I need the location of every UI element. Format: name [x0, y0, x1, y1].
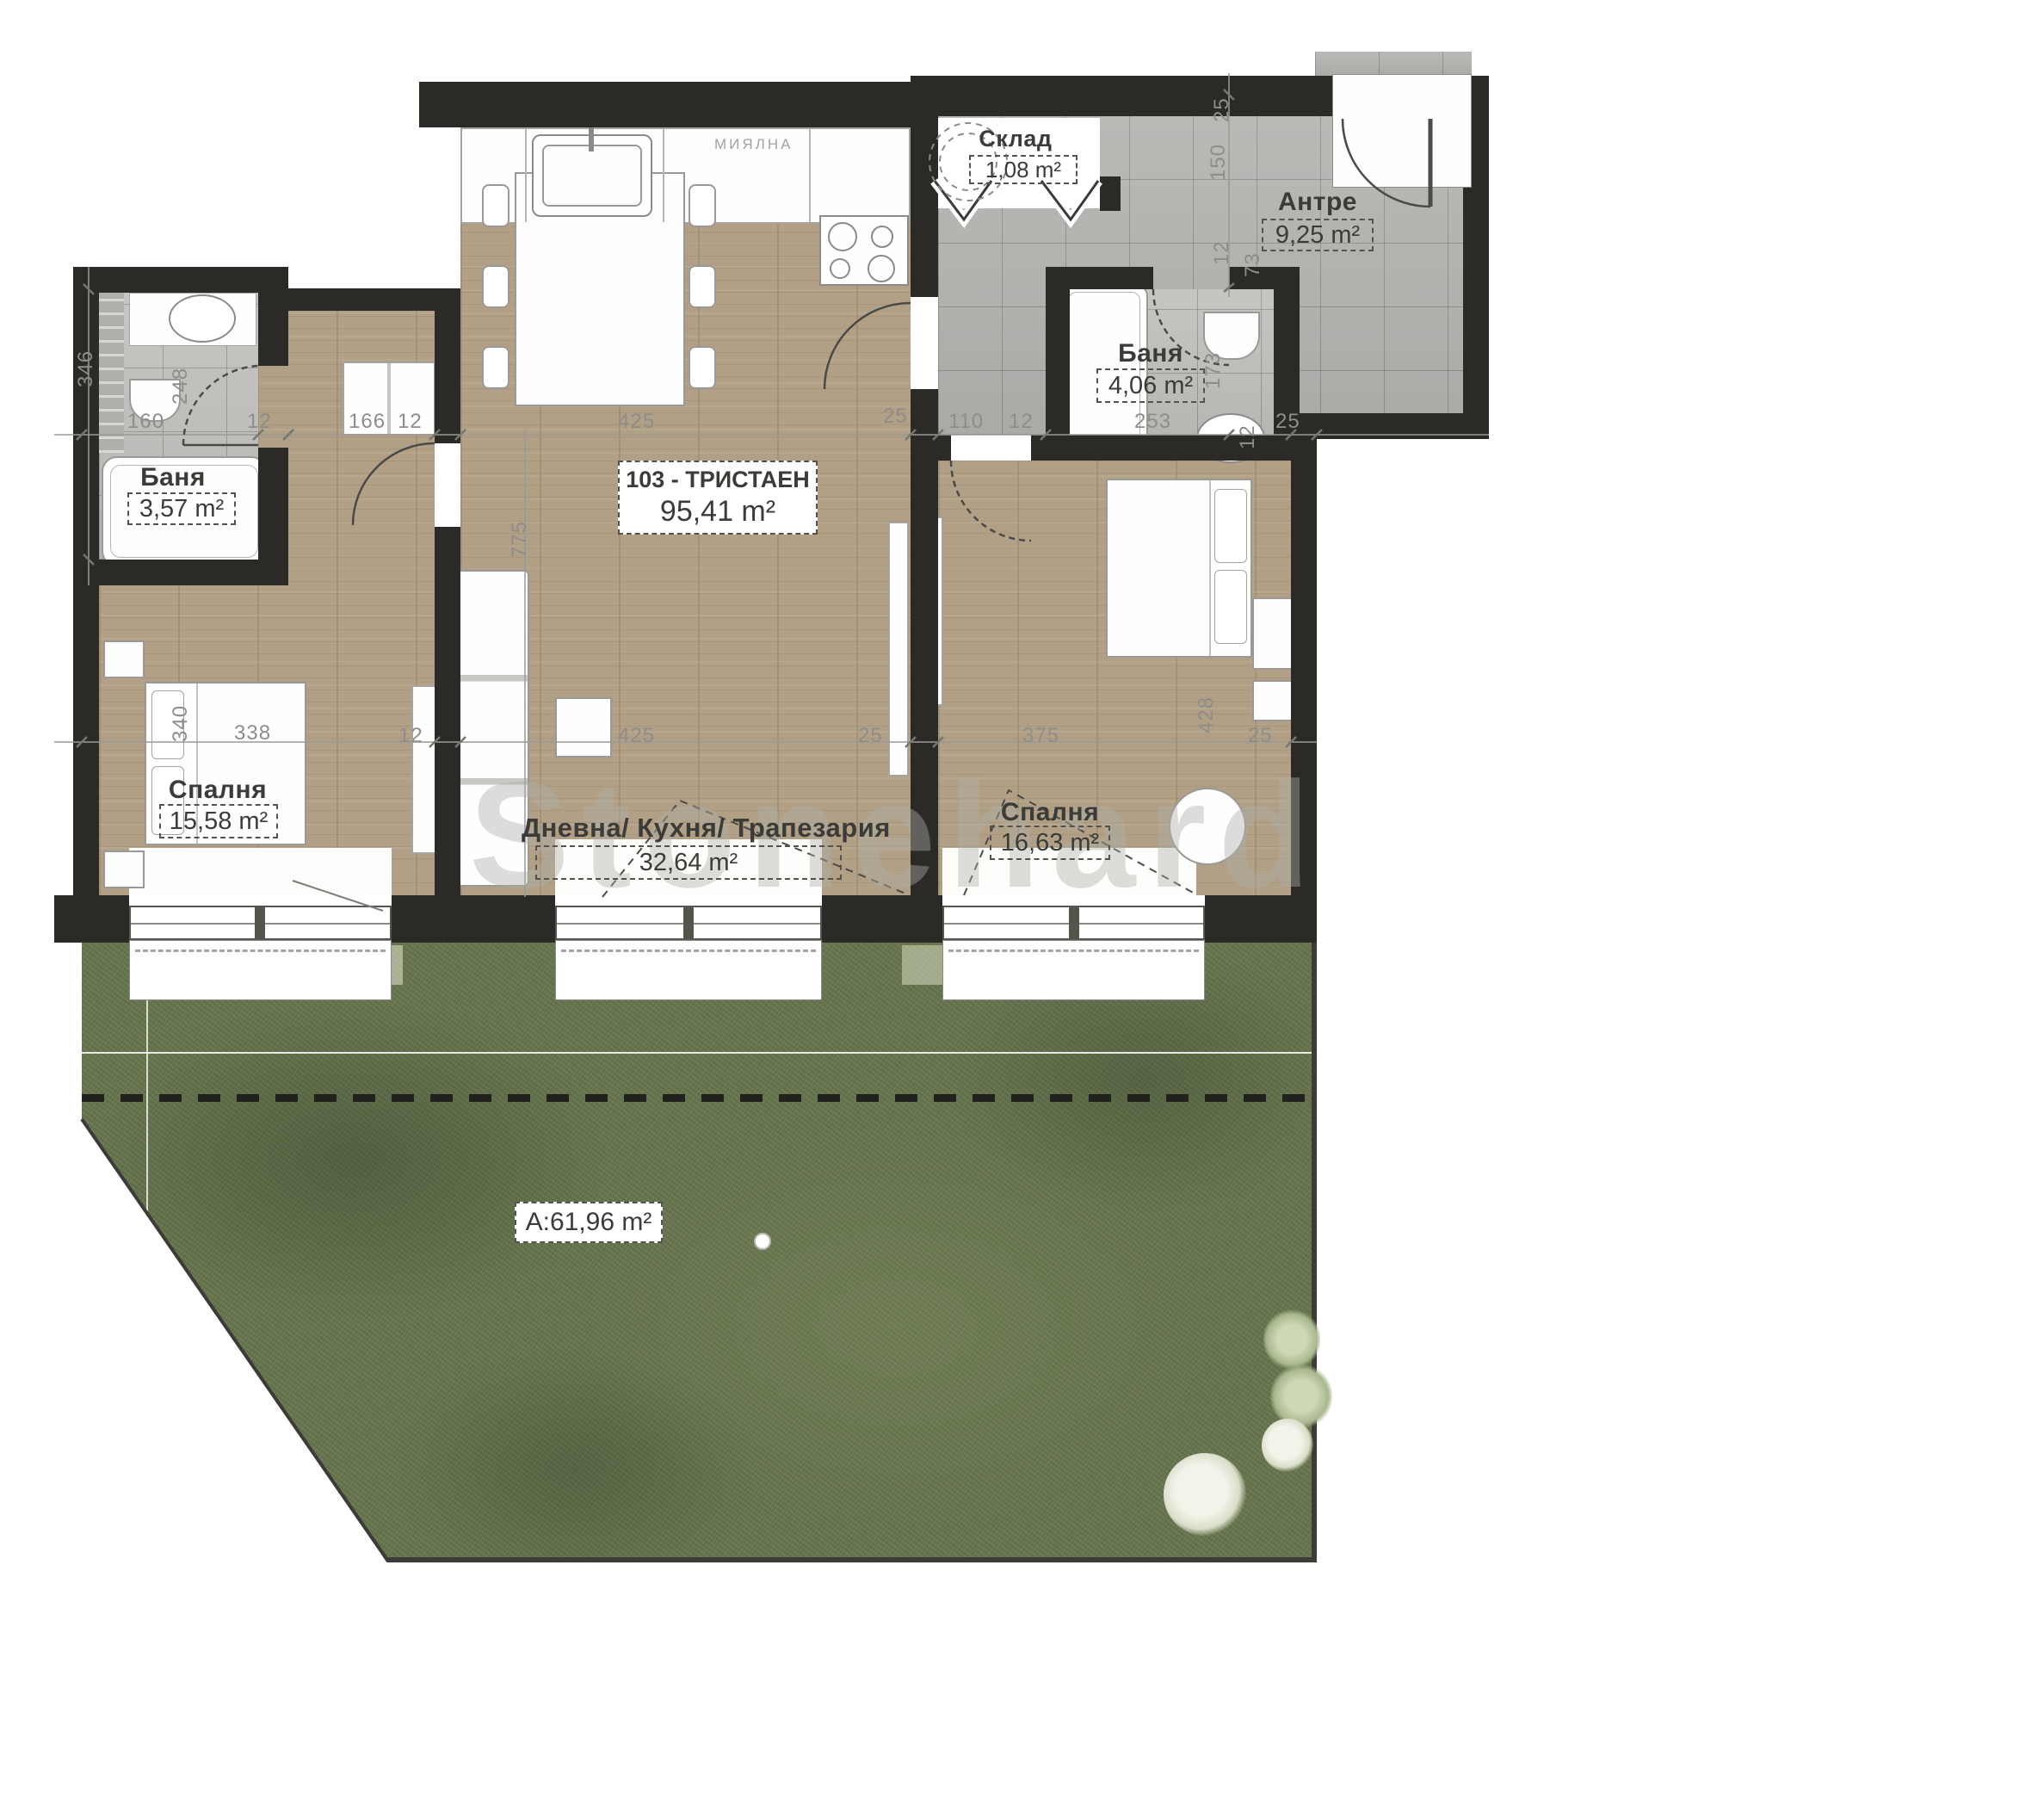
dim-label: 253: [1134, 410, 1171, 434]
dim-label: 25: [1210, 97, 1234, 122]
dim-label: 25: [883, 405, 908, 429]
dim-label: 12: [1236, 424, 1260, 449]
room-area-bedroom-left: 15,58 m²: [159, 804, 278, 838]
dim-label: 25: [858, 724, 883, 748]
room-name-bedroom-right: Спалня: [990, 798, 1110, 827]
dim-label: 338: [234, 721, 271, 745]
dim-label: 425: [618, 410, 655, 434]
dim-label: 73: [1241, 252, 1265, 277]
room-name-living: Дневна/ Кухня/ Трапезария: [522, 813, 842, 844]
dim-label: 160: [127, 410, 164, 434]
dim-label: 428: [1195, 696, 1219, 733]
room-name-bath-left: Баня: [113, 463, 233, 492]
dim-label: 340: [169, 705, 193, 742]
room-name-antre: Антре: [1257, 188, 1378, 217]
room-area-bath-left: 3,57 m²: [127, 492, 236, 525]
room-area-living: 32,64 m²: [535, 845, 842, 880]
room-area-bedroom-right: 16,63 m²: [990, 826, 1110, 860]
unit-id: 103 - ТРИСТАЕН: [626, 467, 810, 493]
dim-label: 12: [247, 410, 272, 434]
room-area-antre: 9,25 m²: [1262, 219, 1374, 251]
unit-label-box: 103 - ТРИСТАЕН 95,41 m²: [618, 461, 818, 535]
plan-linework: [0, 0, 2044, 1800]
dim-label: 150: [1207, 144, 1231, 181]
dim-label: 110: [948, 410, 984, 434]
room-area-bath-right: 4,06 m²: [1096, 368, 1205, 403]
room-name-bath-right: Баня: [1090, 339, 1211, 368]
dim-label: 12: [1210, 240, 1234, 265]
dim-label: 346: [74, 350, 98, 387]
room-name-storage: Склад: [947, 126, 1084, 152]
dim-label: 12: [398, 410, 423, 434]
dim-label: 12: [1009, 410, 1034, 434]
dim-label: 12: [398, 724, 423, 748]
dim-label: 425: [618, 724, 655, 748]
floor-plan: ПЕРАЛНЯ СУШИЛНЯ Склад 1,08 m² Антре 9,25…: [0, 0, 2044, 1800]
dim-label: 375: [1022, 724, 1059, 748]
room-name-bedroom-left: Спалня: [157, 776, 278, 805]
dim-label: 248: [169, 368, 193, 405]
dim-label: 25: [1248, 724, 1273, 748]
dim-label: 775: [508, 521, 532, 558]
room-area-storage: 1,08 m²: [969, 155, 1078, 184]
dim-label: 166: [349, 410, 386, 434]
unit-area: 95,41 m²: [660, 495, 775, 529]
dim-label: 25: [1275, 410, 1300, 434]
garden-area-label: A:61,96 m²: [515, 1202, 663, 1243]
